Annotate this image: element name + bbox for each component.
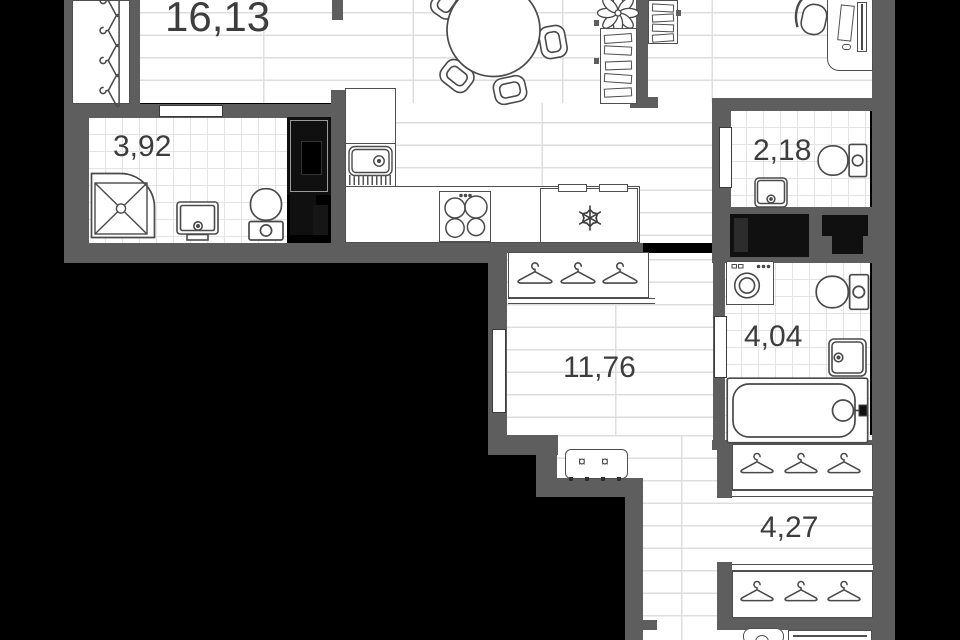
kitchen-dark-cabinet-2 [313, 205, 328, 235]
book-icon [604, 45, 632, 55]
book-icon [604, 33, 633, 44]
bookshelf-left [600, 28, 637, 104]
book-icon [652, 3, 674, 12]
wall-wardrobe2-bottom [717, 618, 872, 630]
shelf-mount [594, 58, 599, 64]
hanger-icon [601, 261, 639, 288]
hanger-icon [99, 73, 124, 109]
bookshelf-right [648, 0, 678, 44]
bench-foot [569, 477, 573, 481]
book-icon [604, 73, 633, 84]
sink-icon [176, 201, 219, 241]
floor-plan: ¤ ¤ 16,13 3,92 2,18 11,76 4,04 4,27 [0, 0, 960, 640]
fixture-partial [743, 628, 784, 640]
wall-kitchen-column [331, 90, 345, 243]
wall-right-outer [872, 0, 895, 640]
door-entrance [492, 329, 506, 413]
kitchen-cabinet [345, 88, 396, 144]
bench-marker-icon: ¤ [578, 454, 586, 468]
wall-kitchen-stub [332, 0, 343, 20]
hanger-icon [516, 261, 554, 288]
hanger-icon [739, 452, 775, 477]
table-partial [788, 630, 872, 640]
wall-bottom-left [64, 243, 507, 263]
wardrobe-2-shelf [732, 564, 873, 571]
tall-unit-oven [301, 141, 322, 175]
room-label-bathroom: 4,04 [744, 322, 802, 352]
table-edge-line [793, 635, 867, 637]
panel-line [861, 4, 863, 50]
hanger-icon [783, 580, 819, 605]
sink-icon [828, 338, 867, 377]
wall-wardrobe1-stub [717, 450, 732, 498]
bench-foot [585, 477, 589, 481]
fridge-handle [558, 184, 587, 192]
toilet-icon [248, 188, 285, 242]
room-label-wc: 2,18 [753, 136, 811, 166]
kitchen-sink-unit [345, 143, 396, 187]
washer-drum-icon [735, 273, 760, 298]
kitchen-sink-icon [349, 147, 392, 176]
shaft-box-1-shade [734, 218, 748, 252]
chair-icon [537, 24, 568, 60]
bench-foot [617, 477, 621, 481]
door-wc [719, 127, 732, 188]
book-icon [652, 24, 674, 33]
room-label-hallway: 11,76 [563, 353, 636, 383]
bench-marker-icon: ¤ [601, 454, 609, 468]
snowflake-icon [577, 205, 603, 231]
book-icon [652, 13, 674, 22]
kitchen-tall-unit [287, 117, 331, 195]
hanger-icon [559, 261, 597, 288]
shaft-box-3 [832, 236, 863, 254]
shaft-box-1 [730, 214, 809, 257]
mouse-icon [842, 44, 851, 50]
bathtub-icon [726, 377, 869, 444]
stove [439, 191, 491, 242]
room-label-shower-room: 3,92 [113, 132, 171, 162]
wall-step-vertical [536, 450, 557, 480]
hanger-icon [826, 452, 862, 477]
door-shower-room [159, 105, 223, 117]
stove-knobs-icon [460, 194, 472, 197]
shelf-mount [594, 20, 599, 26]
bench-foot [601, 477, 605, 481]
book-icon [605, 61, 632, 71]
washing-machine [726, 261, 774, 305]
office-chair-icon [792, 0, 832, 42]
wall-stub-bottom [643, 620, 657, 630]
sink-icon [754, 177, 788, 208]
chair-icon [492, 74, 529, 106]
shower-tray-icon [90, 172, 156, 239]
door-bathroom [714, 316, 727, 378]
shelf-mount [676, 10, 681, 16]
fixture-knob [755, 635, 769, 640]
stove-burners-icon [445, 196, 487, 237]
wall-left-thick [64, 103, 89, 263]
shaft-box-2 [822, 215, 868, 236]
fridge-handle [599, 184, 628, 192]
wardrobe-1-shelf [732, 490, 873, 497]
wall-wc-top [712, 98, 895, 111]
desk-side-panel [857, 2, 867, 52]
wall-wardrobe-right [130, 0, 140, 108]
hanger-icon [826, 580, 862, 605]
hanger-icon [783, 452, 819, 477]
fridge [540, 188, 638, 243]
coat-rack-shelf [508, 298, 655, 304]
wall-corridor-left [625, 480, 643, 640]
hanger-icon [739, 580, 775, 605]
vent-grille-icon [349, 175, 391, 185]
book-icon [604, 87, 632, 97]
toilet-icon [815, 143, 870, 178]
room-label-living: 16,13 [165, 0, 270, 38]
toilet-icon [815, 273, 870, 311]
room-label-corridor: 4,27 [760, 513, 818, 543]
book-icon [652, 33, 675, 43]
dining-set [400, 0, 600, 110]
shoe-bench: ¤ ¤ [565, 449, 628, 479]
